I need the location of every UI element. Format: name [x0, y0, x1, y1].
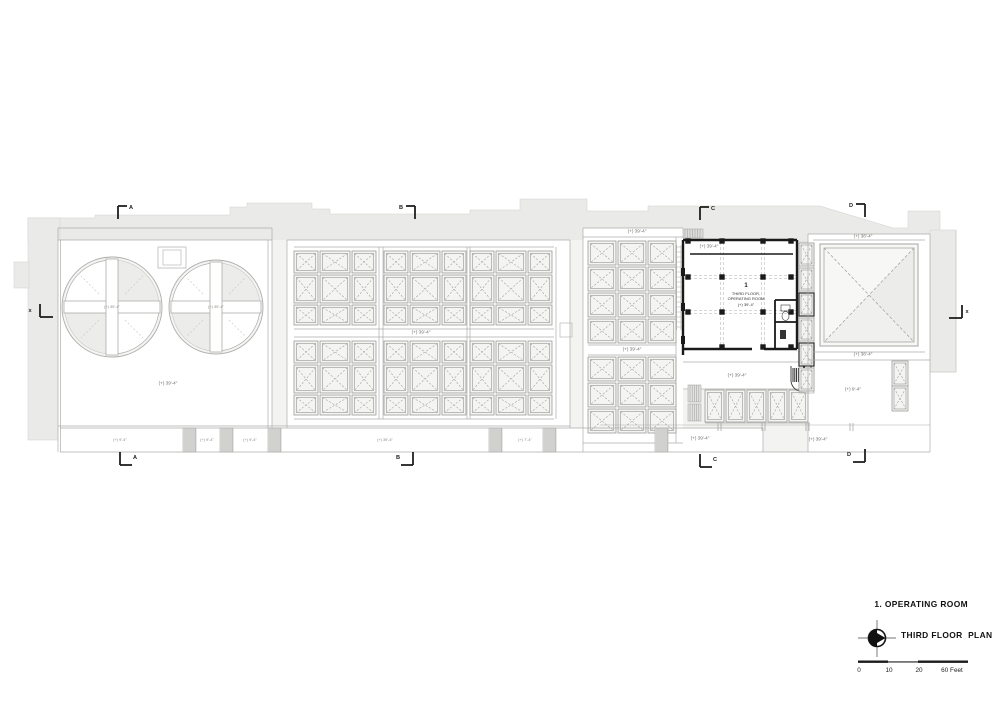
elevation-label: (+) 39'-4" — [809, 438, 828, 443]
room-number: 1 — [744, 283, 747, 289]
scale-tick-10: 10 — [885, 667, 892, 674]
elevation-label: (+) 39'-4" — [159, 382, 178, 387]
elevation-label: (+) 38'-4" — [854, 235, 873, 240]
section-marker-a-bottom: A — [133, 456, 137, 462]
room-elevation: (+) 39'-4" — [738, 303, 754, 307]
section-marker-c-top: C — [711, 207, 715, 213]
section-marker-b-top: B — [399, 206, 403, 212]
elevation-label: (+) 39'-4" — [728, 374, 747, 379]
section-marker-d-bottom: D — [847, 453, 851, 459]
elevation-label: (+) 39'-4" — [623, 348, 642, 353]
section-marker-x-right: x — [965, 310, 968, 316]
scale-end-label: 60 Feet — [941, 667, 963, 674]
drawing-sheet: (+) 39'-4" (+) 39'-4" (+) 39'-4" (+) 39'… — [0, 0, 1000, 707]
section-marker-d-top: D — [849, 204, 853, 210]
elevation-label: (+) 38'-4" — [854, 353, 873, 358]
elevation-label: (+) 9'-4" — [845, 388, 861, 393]
elevation-label: (+) 39'-4" — [691, 437, 710, 442]
plan-title: THIRD FLOOR PLAN — [901, 630, 992, 640]
elevation-label: (+) 39'-4" — [412, 331, 431, 336]
elevation-label: (+) 39'-4" — [208, 305, 224, 309]
scale-tick-20: 20 — [915, 667, 922, 674]
elevation-label: (+) 39'-4" — [104, 305, 120, 309]
elevation-label: (+) 7'-4" — [518, 438, 532, 442]
elevation-label: (+) 39'-4" — [700, 245, 719, 250]
room-name-line2: OPERATING ROOM — [728, 297, 765, 301]
section-marker-a-top: A — [129, 206, 133, 212]
section-marker-c-bottom: C — [713, 458, 717, 464]
elevation-label: (+) 9'-4" — [113, 438, 127, 442]
section-marker-x-left: x — [28, 309, 31, 315]
floor-plan-drawing — [0, 0, 1000, 707]
elevation-label: (+) 39'-4" — [628, 230, 647, 235]
scale-tick-0: 0 — [857, 667, 861, 674]
elevation-label: (+) 39'-4" — [377, 438, 393, 442]
elevation-label: (+) 9'-4" — [243, 438, 257, 442]
section-marker-b-bottom: B — [396, 456, 400, 462]
drawing-title: 1. OPERATING ROOM — [852, 599, 968, 609]
elevation-label: (+) 9'-4" — [200, 438, 214, 442]
